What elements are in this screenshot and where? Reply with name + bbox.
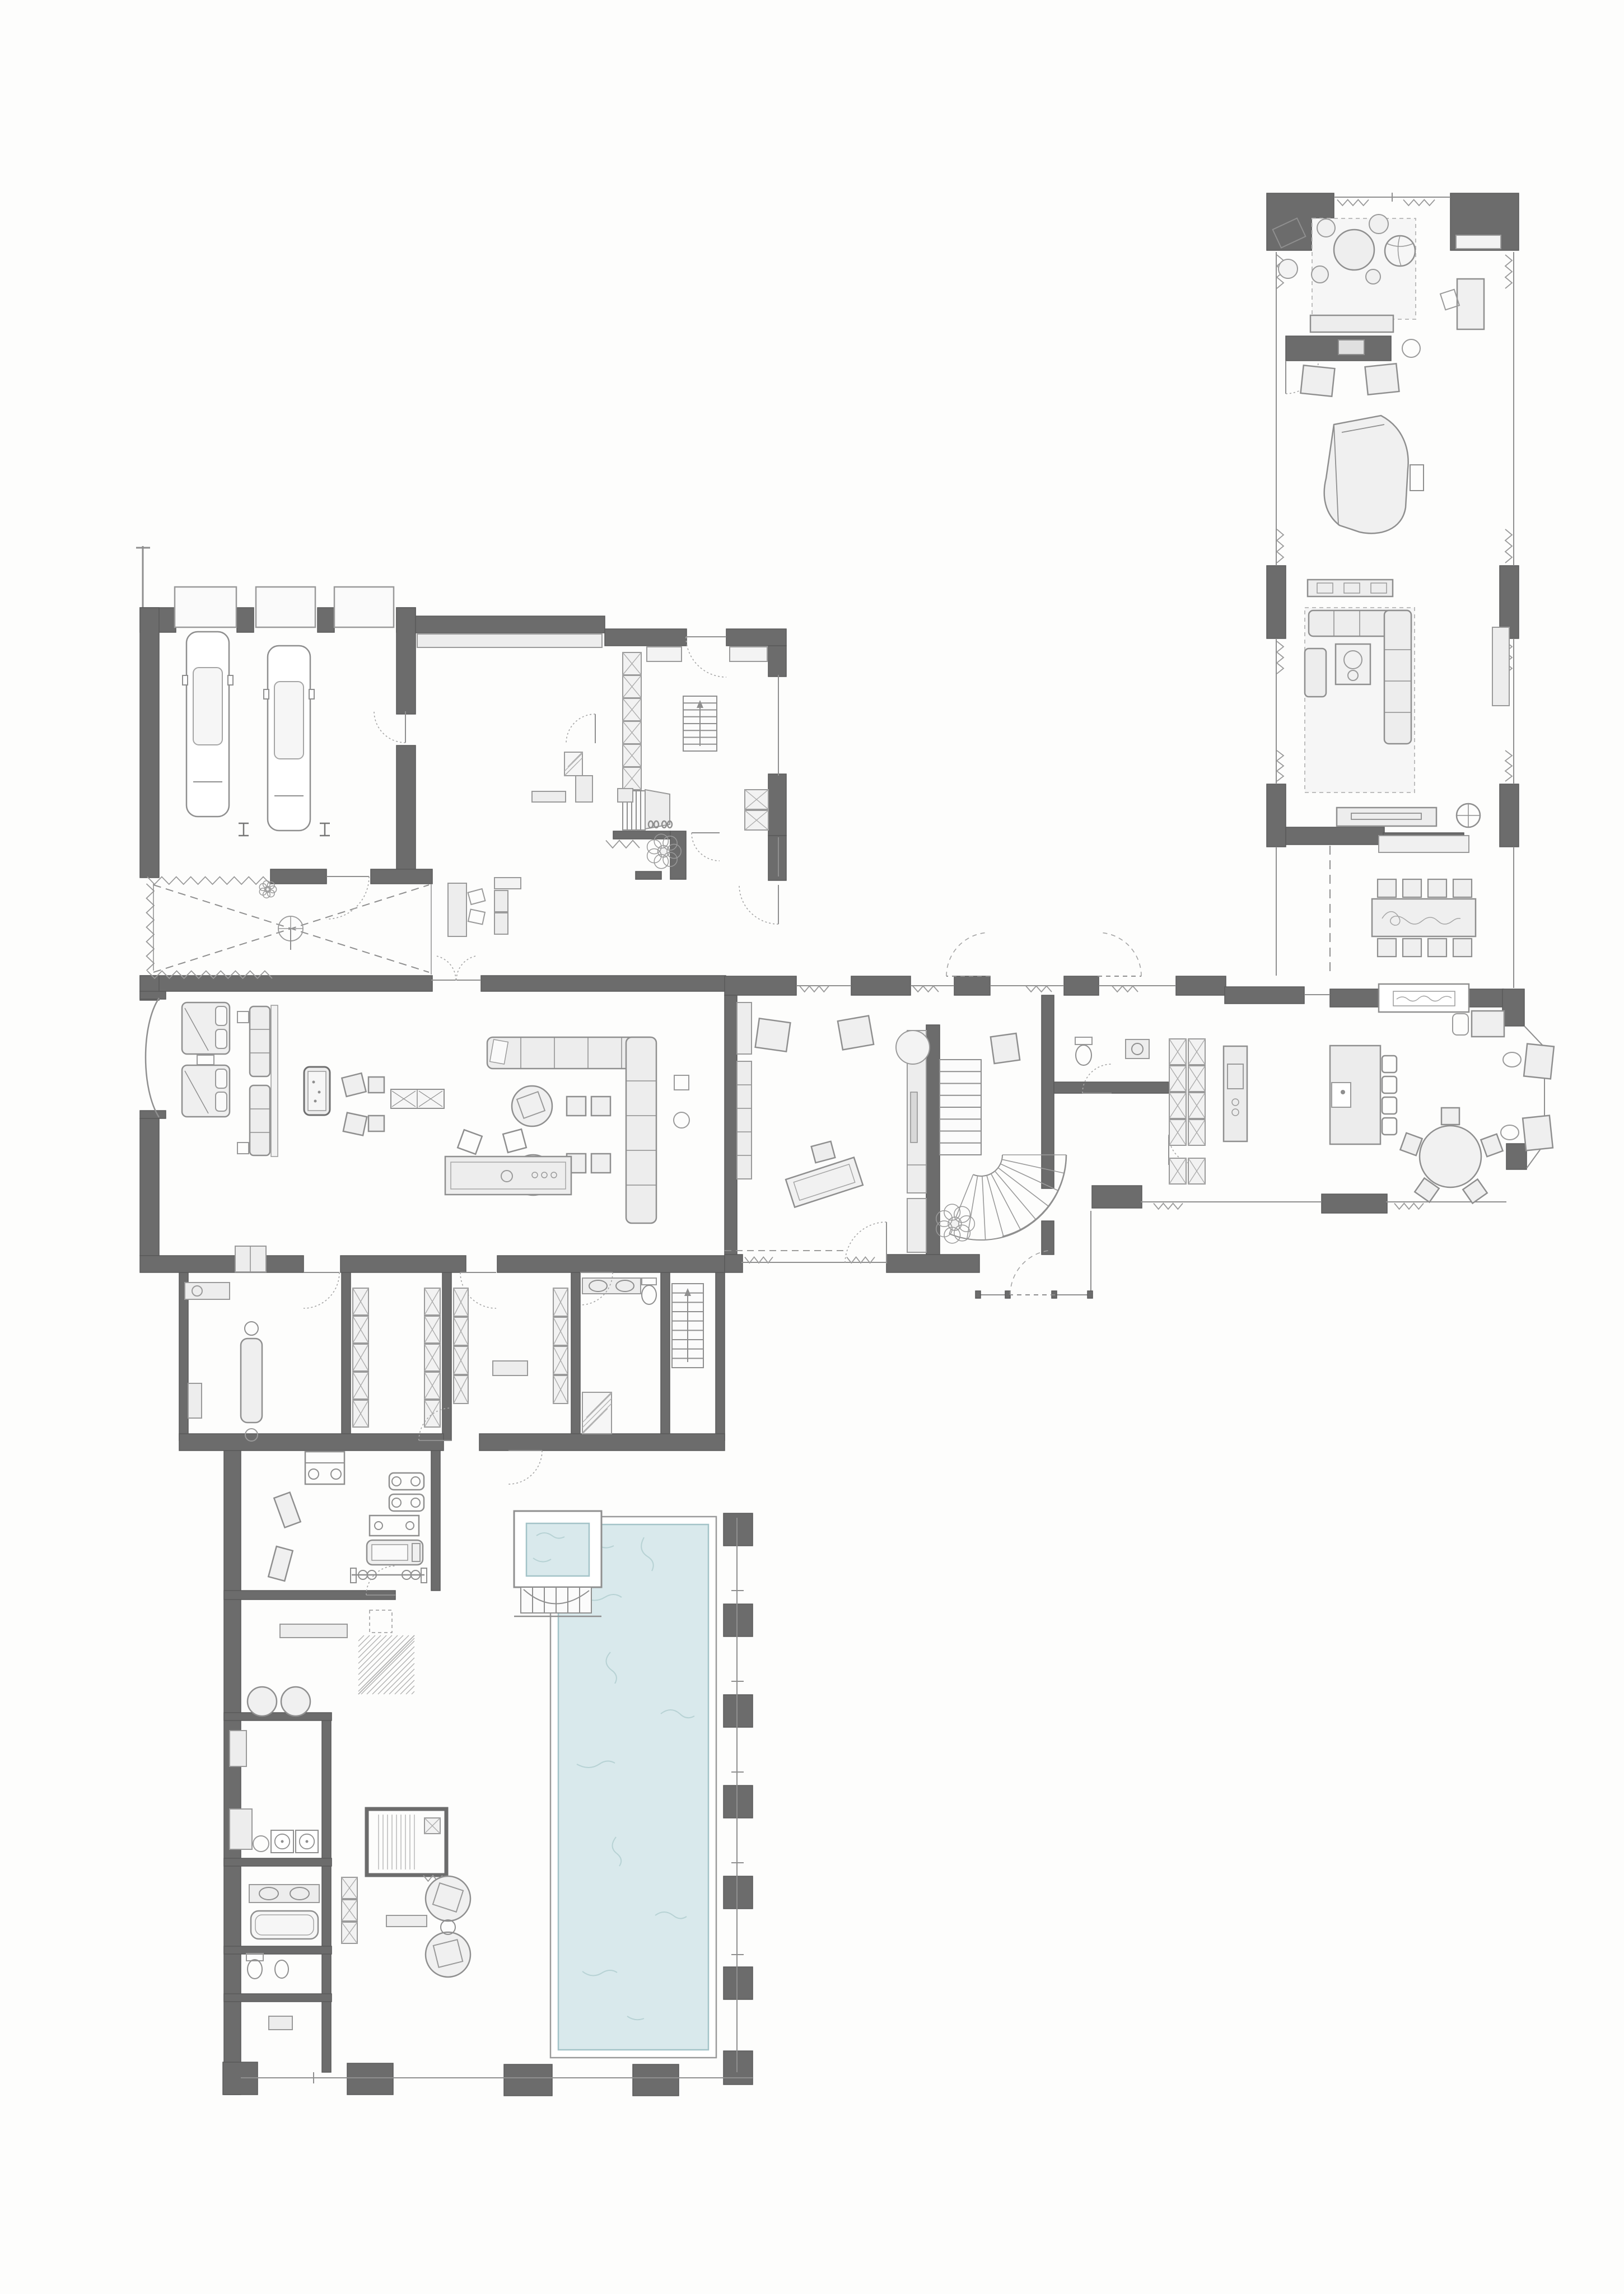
garage	[175, 587, 405, 836]
fireplace	[1379, 984, 1469, 1012]
smith-machine	[305, 1452, 344, 1484]
gym	[268, 1451, 542, 1595]
breakfast-table	[1420, 1126, 1481, 1187]
changing-sauna-utility	[230, 1610, 470, 2030]
dining-table	[1372, 899, 1476, 936]
play-table	[1334, 230, 1374, 270]
desk	[1457, 279, 1484, 329]
wing-dining	[1330, 846, 1476, 975]
piano-bench	[1410, 465, 1424, 491]
floor-plan-page	[0, 0, 1624, 2294]
study	[725, 1003, 926, 1263]
massage-table	[241, 1339, 262, 1423]
desk	[786, 1157, 863, 1207]
mudroom	[417, 634, 778, 924]
floor-plan-svg	[0, 0, 1624, 2294]
window-seat	[1310, 315, 1393, 332]
garden-hall	[448, 878, 521, 936]
round-lounger	[426, 1876, 470, 1921]
pool	[514, 1511, 716, 2058]
wing-living	[1305, 608, 1509, 852]
grand-piano	[1324, 416, 1408, 533]
wing-music-room	[1301, 363, 1424, 596]
round-lounger	[426, 1932, 470, 1977]
courtyard	[147, 876, 482, 980]
round-rug	[896, 1031, 930, 1064]
kitchen	[1169, 984, 1554, 1203]
